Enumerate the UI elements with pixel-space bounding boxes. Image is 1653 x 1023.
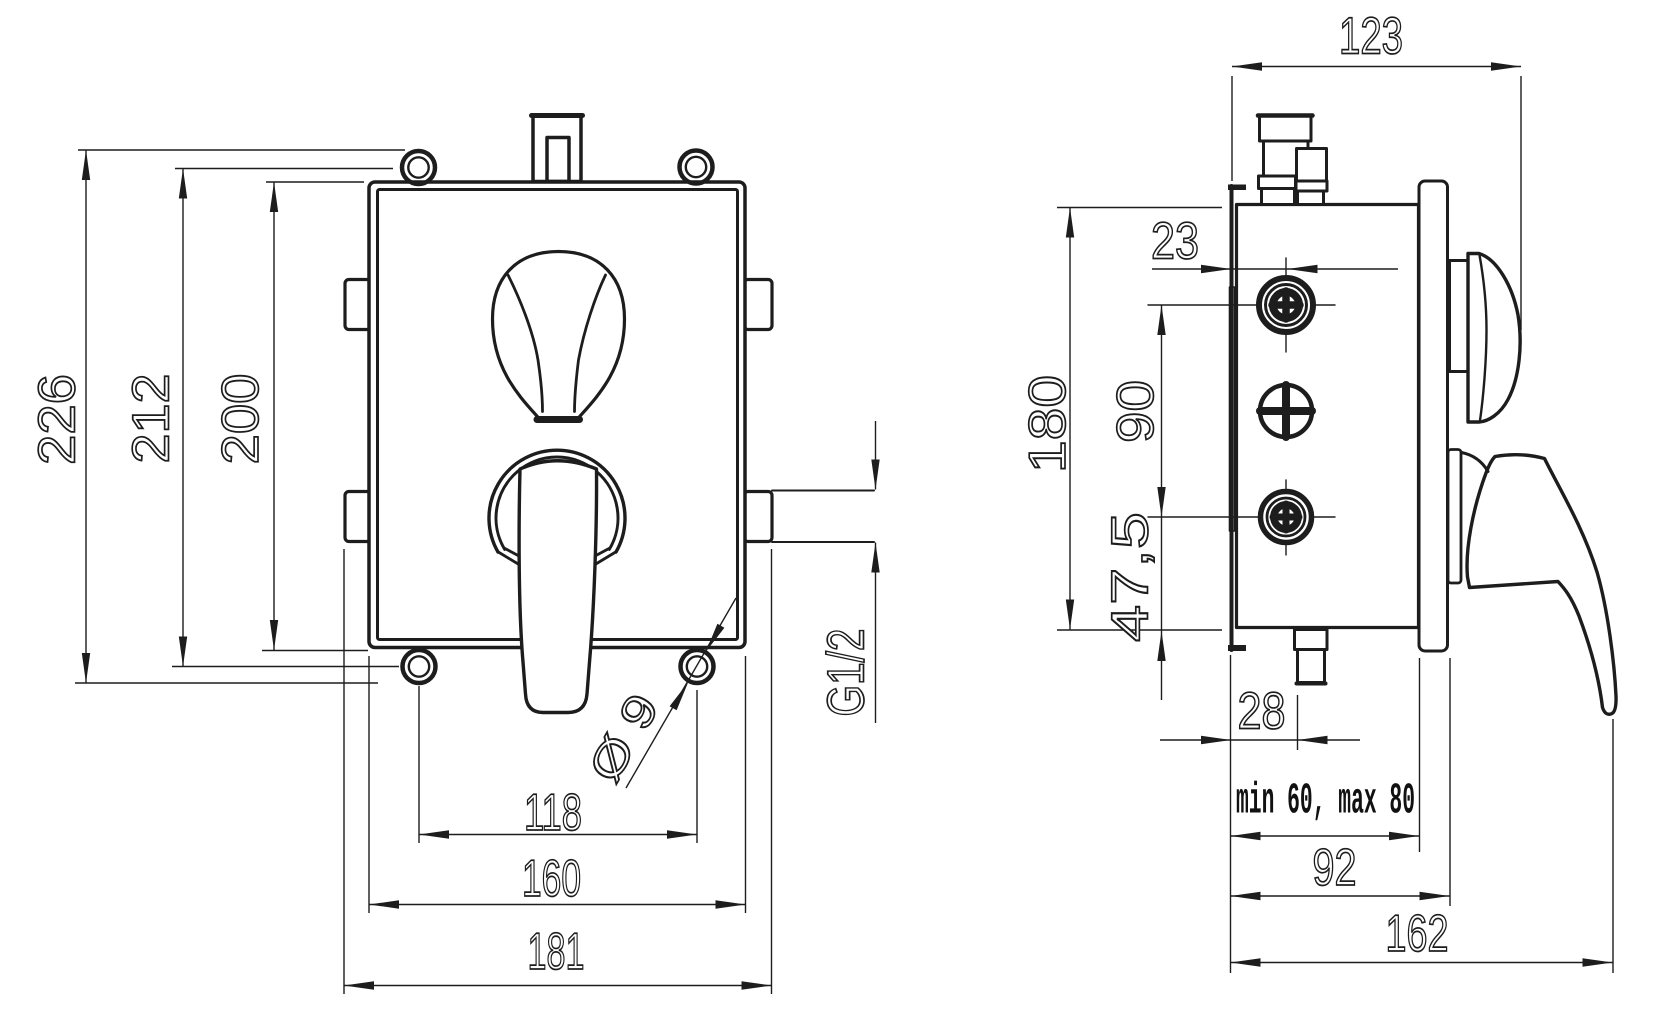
svg-text:47,5: 47,5 [1102,512,1160,642]
svg-text:162: 162 [1386,905,1449,963]
svg-text:G1/2: G1/2 [818,629,876,717]
svg-text:118: 118 [524,784,582,842]
svg-text:226: 226 [29,374,87,465]
svg-text:180: 180 [1019,375,1077,473]
svg-text:28: 28 [1238,683,1286,741]
svg-text:90: 90 [1107,380,1165,443]
svg-text:min 60, max 80: min 60, max 80 [1236,777,1415,827]
svg-text:92: 92 [1313,839,1357,897]
svg-text:200: 200 [212,374,270,465]
svg-text:23: 23 [1151,213,1199,271]
svg-text:181: 181 [528,923,585,981]
svg-text:212: 212 [123,374,181,464]
svg-text:123: 123 [1339,8,1403,66]
svg-text:160: 160 [522,850,581,908]
